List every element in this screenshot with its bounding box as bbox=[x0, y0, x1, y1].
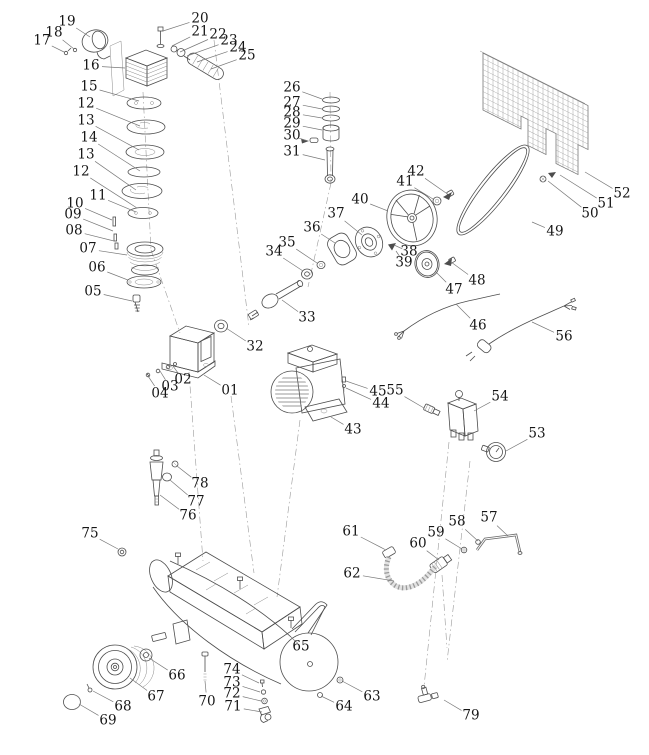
leader-line-44 bbox=[346, 388, 371, 399]
part-label-10: 10 bbox=[66, 196, 83, 212]
leader-line-11 bbox=[108, 200, 136, 212]
leader-line-34 bbox=[283, 258, 303, 271]
part-cylinder-head bbox=[126, 50, 167, 86]
part-regulator-valve bbox=[150, 450, 172, 505]
part-outlet-pipe bbox=[477, 535, 522, 554]
part-label-70: 70 bbox=[198, 694, 215, 710]
part-safety-valve bbox=[415, 682, 438, 703]
part-label-55: 55 bbox=[386, 383, 403, 399]
part-label-19: 19 bbox=[58, 14, 75, 30]
part-label-39: 39 bbox=[395, 255, 412, 271]
leader-line-76 bbox=[160, 495, 179, 509]
leader-line-63 bbox=[342, 681, 362, 692]
part-pipe-nut bbox=[461, 547, 467, 553]
part-label-60: 60 bbox=[409, 536, 426, 552]
part-label-07: 07 bbox=[79, 241, 96, 257]
part-label-62: 62 bbox=[343, 566, 360, 582]
part-label-56: 56 bbox=[555, 329, 572, 345]
part-label-45: 45 bbox=[369, 384, 386, 400]
part-label-42: 42 bbox=[407, 164, 424, 180]
leader-line-25 bbox=[211, 60, 237, 69]
leader-line-26 bbox=[302, 92, 322, 99]
leader-line-56 bbox=[532, 322, 554, 332]
leader-line-35 bbox=[296, 249, 317, 263]
platform-bolts bbox=[176, 553, 294, 628]
part-piston-rings bbox=[323, 97, 340, 121]
leader-line-48 bbox=[451, 262, 468, 275]
leader-line-60 bbox=[427, 551, 439, 560]
part-label-30: 30 bbox=[283, 128, 300, 144]
part-tank-plug bbox=[337, 677, 343, 683]
part-breather-fitting bbox=[133, 295, 140, 312]
part-crank-spacer bbox=[317, 261, 325, 268]
leader-line-13 bbox=[95, 161, 136, 190]
leader-line-43 bbox=[331, 417, 344, 424]
part-label-77: 77 bbox=[187, 494, 204, 510]
leader-line-05 bbox=[104, 295, 132, 302]
part-bearing bbox=[215, 320, 228, 332]
part-label-08: 08 bbox=[65, 223, 82, 239]
leader-line-42 bbox=[425, 178, 446, 193]
part-piston-pin bbox=[310, 138, 318, 143]
part-wheel bbox=[93, 645, 154, 689]
leader-line-57 bbox=[497, 526, 508, 536]
leader-line-49 bbox=[532, 222, 545, 228]
leader-line-52 bbox=[585, 172, 613, 188]
part-label-64: 64 bbox=[335, 699, 352, 715]
part-label-57: 57 bbox=[480, 510, 497, 526]
part-label-14: 14 bbox=[80, 130, 97, 146]
leader-line-40 bbox=[370, 204, 388, 211]
part-label-68: 68 bbox=[114, 699, 131, 715]
leader-line-68 bbox=[93, 691, 113, 702]
part-label-54: 54 bbox=[491, 389, 508, 405]
leader-line-74 bbox=[242, 675, 259, 683]
part-label-46: 46 bbox=[469, 318, 486, 334]
part-label-13: 13 bbox=[77, 113, 94, 129]
part-pressure-switch bbox=[448, 391, 478, 441]
part-crankcase-screws bbox=[146, 363, 176, 377]
leader-line-28 bbox=[303, 115, 322, 118]
leader-line-61 bbox=[361, 537, 386, 550]
part-piston bbox=[323, 125, 339, 141]
leader-line-58 bbox=[465, 529, 478, 541]
leader-line-79 bbox=[444, 700, 462, 710]
part-label-65: 65 bbox=[292, 639, 309, 655]
part-label-06: 06 bbox=[88, 260, 105, 276]
part-label-12: 12 bbox=[77, 96, 94, 112]
part-air-filter bbox=[64, 27, 110, 59]
leader-line-69 bbox=[79, 704, 99, 715]
part-base-gasket bbox=[127, 276, 161, 288]
flywheel-key-arrow bbox=[388, 243, 396, 251]
part-label-35: 35 bbox=[278, 235, 295, 251]
part-label-26: 26 bbox=[283, 80, 300, 96]
part-guard-screws bbox=[540, 172, 556, 182]
part-label-53: 53 bbox=[528, 426, 545, 442]
part-flywheel-washer bbox=[433, 197, 441, 205]
part-pressure-gauge bbox=[481, 443, 505, 462]
part-label-31: 31 bbox=[283, 144, 300, 160]
part-label-63: 63 bbox=[363, 689, 380, 705]
part-label-59: 59 bbox=[427, 525, 444, 541]
exploded-parts-diagram: 0102030405060708091011121314131215161718… bbox=[0, 0, 649, 755]
part-bracket-plate bbox=[110, 41, 124, 96]
leader-line-27 bbox=[303, 105, 322, 109]
leader-line-29 bbox=[303, 126, 322, 130]
part-label-11: 11 bbox=[89, 188, 106, 204]
part-label-33: 33 bbox=[298, 310, 315, 326]
leader-line-55 bbox=[405, 397, 425, 408]
leader-line-72 bbox=[243, 697, 261, 701]
leader-line-20 bbox=[163, 22, 190, 31]
part-label-15: 15 bbox=[80, 79, 97, 95]
leader-line-75 bbox=[100, 539, 118, 549]
leader-line-32 bbox=[226, 328, 246, 341]
leader-line-77 bbox=[170, 480, 188, 495]
part-label-04: 04 bbox=[151, 386, 168, 402]
leader-line-15 bbox=[100, 90, 139, 101]
part-seal-gasket bbox=[325, 231, 359, 268]
leader-line-21 bbox=[172, 37, 190, 46]
leader-line-64 bbox=[321, 696, 334, 702]
part-label-50: 50 bbox=[581, 206, 598, 222]
part-label-01: 01 bbox=[221, 383, 238, 399]
part-label-25: 25 bbox=[238, 48, 255, 64]
part-label-75: 75 bbox=[81, 526, 98, 542]
leader-line-07 bbox=[99, 251, 127, 255]
part-tank-port bbox=[318, 693, 323, 698]
leader-line-33 bbox=[282, 300, 298, 312]
leader-line-10 bbox=[85, 208, 112, 220]
part-label-76: 76 bbox=[179, 508, 196, 524]
leader-line-66 bbox=[149, 658, 168, 670]
leader-line-31 bbox=[303, 155, 325, 160]
part-tank-fitting bbox=[423, 404, 440, 417]
part-label-61: 61 bbox=[342, 524, 359, 540]
part-label-78: 78 bbox=[191, 476, 208, 492]
part-axle-bolt bbox=[202, 652, 208, 680]
part-platform bbox=[168, 552, 302, 649]
leader-line-70 bbox=[205, 681, 206, 693]
part-pipe-fitting bbox=[476, 540, 481, 545]
part-label-40: 40 bbox=[351, 192, 368, 208]
part-motor bbox=[271, 345, 347, 421]
part-head-bolt bbox=[157, 27, 164, 48]
part-valve-plate-stack bbox=[122, 97, 165, 219]
part-label-69: 69 bbox=[99, 713, 116, 729]
part-label-49: 49 bbox=[546, 224, 563, 240]
part-label-48: 48 bbox=[468, 273, 485, 289]
part-cylinder-sleeve bbox=[127, 242, 163, 275]
part-muffler bbox=[185, 51, 225, 82]
part-label-58: 58 bbox=[448, 514, 465, 530]
part-label-32: 32 bbox=[246, 339, 263, 355]
part-label-52: 52 bbox=[613, 186, 630, 202]
part-label-21: 21 bbox=[191, 24, 208, 40]
leader-line-18 bbox=[63, 40, 74, 49]
part-label-05: 05 bbox=[84, 284, 101, 300]
leader-line-53 bbox=[506, 439, 527, 451]
part-label-66: 66 bbox=[168, 668, 185, 684]
leader-line-16 bbox=[102, 67, 125, 68]
leader-line-37 bbox=[345, 221, 362, 235]
part-label-37: 37 bbox=[327, 206, 344, 222]
leader-line-12 bbox=[96, 108, 140, 126]
leader-line-09 bbox=[83, 219, 113, 231]
leader-line-46 bbox=[456, 304, 470, 318]
part-wheel-pin bbox=[87, 684, 92, 692]
leader-line-59 bbox=[445, 539, 462, 549]
leader-line-17 bbox=[52, 46, 64, 52]
part-label-36: 36 bbox=[303, 220, 320, 236]
leader-line-73 bbox=[243, 686, 261, 692]
part-label-79: 79 bbox=[462, 708, 479, 724]
part-flywheel-bolt bbox=[443, 190, 454, 200]
leader-line-04 bbox=[148, 376, 155, 386]
part-hose-elbow bbox=[382, 546, 396, 558]
part-belt bbox=[448, 138, 538, 243]
part-dowel-pins bbox=[113, 217, 118, 249]
part-label-47: 47 bbox=[445, 282, 462, 298]
leader-line-45 bbox=[346, 381, 368, 388]
part-label-43: 43 bbox=[344, 422, 361, 438]
part-label-74: 74 bbox=[223, 662, 240, 678]
diagram-canvas: 0102030405060708091011121314131215161718… bbox=[0, 0, 649, 755]
part-bearing-cover bbox=[350, 222, 388, 262]
leader-line-67 bbox=[130, 678, 147, 691]
part-label-67: 67 bbox=[147, 689, 164, 705]
part-label-51: 51 bbox=[597, 196, 614, 212]
part-label-12: 12 bbox=[72, 164, 89, 180]
leader-line-78 bbox=[177, 466, 191, 477]
part-connecting-rod bbox=[325, 147, 335, 183]
leader-line-01 bbox=[204, 375, 221, 385]
part-axle-bracket bbox=[151, 620, 190, 644]
part-label-16: 16 bbox=[82, 58, 99, 74]
part-crankcase bbox=[162, 326, 215, 378]
part-tank bbox=[145, 556, 291, 684]
part-label-13: 13 bbox=[77, 147, 94, 163]
part-hub-cap bbox=[64, 695, 81, 710]
part-discharge-hose bbox=[386, 557, 436, 588]
leader-line-06 bbox=[107, 272, 128, 280]
part-crankshaft bbox=[248, 279, 304, 320]
part-flywheel bbox=[382, 185, 443, 250]
part-handle bbox=[292, 602, 327, 635]
leader-line-41 bbox=[414, 188, 433, 199]
part-lock-nut bbox=[118, 548, 126, 556]
